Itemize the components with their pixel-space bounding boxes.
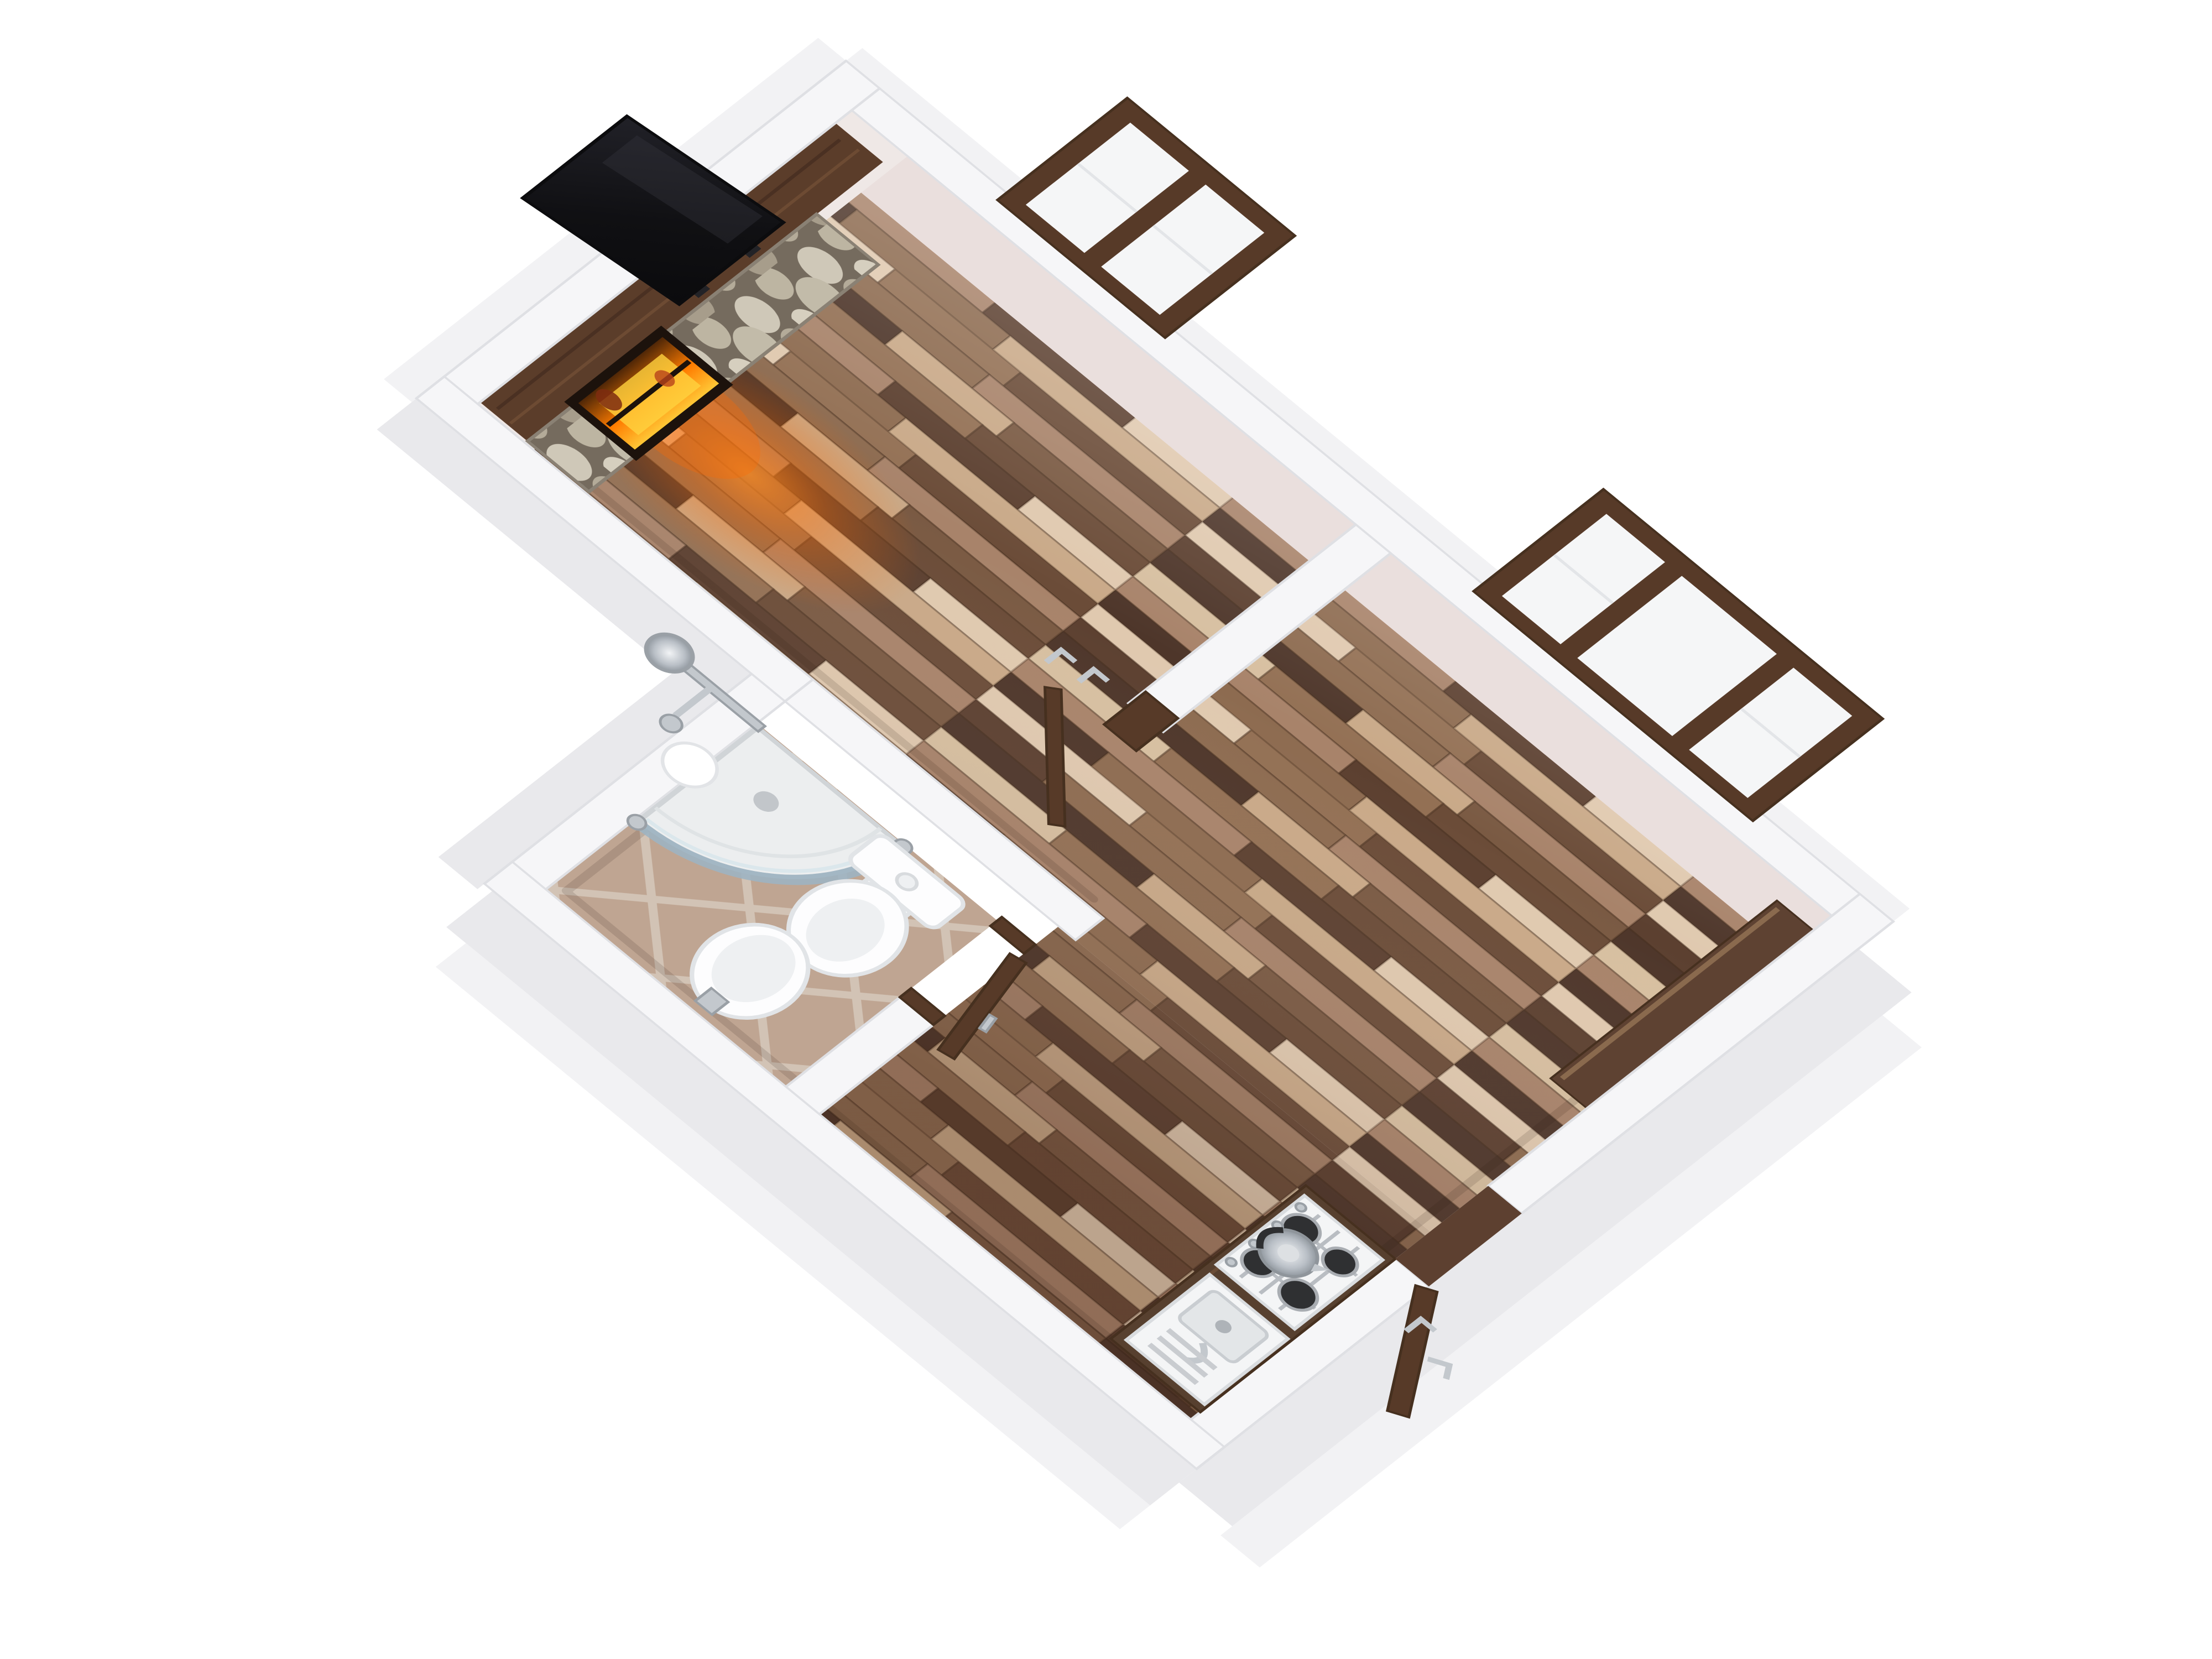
apartment	[0, 0, 2106, 1605]
render-canvas: 3D rendered floor plan of a studio apart…	[0, 0, 2212, 1659]
bathroom-door-jamb-north	[990, 917, 1036, 953]
interior-door-leaf	[1045, 687, 1065, 826]
apartment-floorplan-svg: 3D rendered floor plan of a studio apart…	[0, 0, 2212, 1659]
